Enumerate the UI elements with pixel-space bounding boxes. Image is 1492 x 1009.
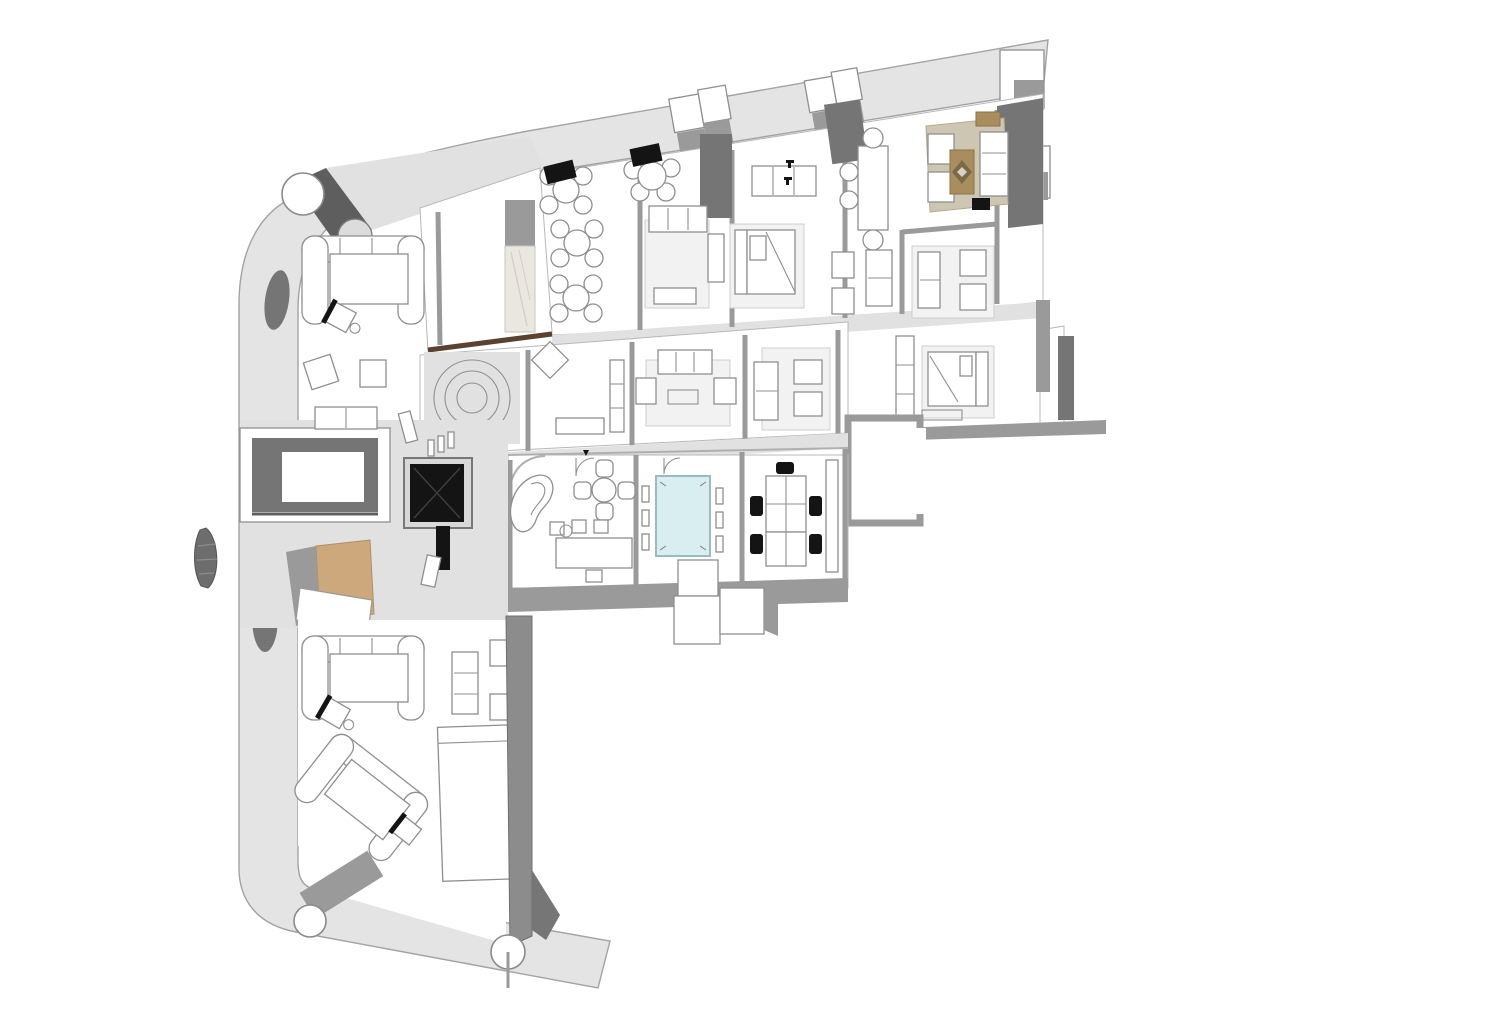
side-chair bbox=[642, 510, 649, 526]
closet bbox=[896, 336, 914, 424]
floor-plan-canvas bbox=[0, 0, 1492, 1009]
side-chair bbox=[642, 534, 649, 550]
bench bbox=[556, 418, 604, 434]
floor-plan-rendering bbox=[0, 0, 1492, 1009]
bedroom-2 bbox=[896, 336, 994, 424]
chair bbox=[840, 191, 858, 209]
wall-block bbox=[1036, 300, 1050, 392]
chair bbox=[840, 163, 858, 181]
u-sofa-arm bbox=[302, 236, 328, 324]
armchair bbox=[832, 252, 854, 278]
armchair bbox=[832, 288, 854, 314]
left-core bbox=[195, 411, 509, 634]
round-column bbox=[294, 905, 326, 937]
wall-block bbox=[1058, 336, 1074, 420]
task-chair-black bbox=[750, 496, 763, 516]
armchair bbox=[960, 284, 986, 310]
wall bbox=[438, 212, 440, 345]
railing bbox=[428, 440, 434, 456]
railing bbox=[438, 436, 444, 452]
tall-cabinet bbox=[826, 460, 838, 572]
stair-void bbox=[240, 428, 390, 522]
sitting-room bbox=[912, 246, 994, 318]
armchair bbox=[794, 360, 822, 384]
louver-column bbox=[195, 528, 218, 588]
terrace-opening bbox=[912, 428, 926, 514]
tall-marble-wardrobe bbox=[505, 246, 535, 332]
sofa bbox=[649, 206, 707, 232]
sofa bbox=[452, 652, 478, 714]
sitting-group-left bbox=[303, 354, 386, 429]
terrace-box bbox=[848, 418, 926, 523]
side-chair bbox=[716, 512, 723, 528]
pillow bbox=[750, 236, 766, 260]
side-chair bbox=[716, 488, 723, 504]
task-chair-black bbox=[750, 534, 763, 554]
storage-closet bbox=[437, 725, 518, 882]
terrace-walls bbox=[848, 418, 920, 523]
chair bbox=[863, 128, 883, 148]
shelf bbox=[610, 360, 624, 432]
armchair bbox=[636, 378, 656, 404]
pillow bbox=[960, 356, 972, 376]
cube bbox=[674, 596, 720, 644]
armchair bbox=[960, 250, 986, 276]
desk bbox=[330, 654, 408, 702]
wardrobe-top bbox=[505, 200, 535, 246]
sideboard bbox=[976, 112, 1000, 126]
railing bbox=[448, 432, 454, 448]
armchair bbox=[360, 360, 386, 387]
sofa bbox=[658, 350, 712, 374]
tan-room bbox=[286, 540, 374, 634]
headboard bbox=[976, 352, 988, 406]
round-column bbox=[282, 173, 324, 215]
task-chair-black bbox=[809, 534, 822, 554]
glass-table-cyan bbox=[656, 476, 710, 556]
sofa bbox=[980, 132, 1008, 196]
living-nook-1 bbox=[636, 350, 736, 426]
task-chair-black bbox=[776, 462, 794, 474]
side-chair bbox=[716, 536, 723, 552]
desk bbox=[330, 254, 408, 304]
side-cabinet bbox=[708, 234, 724, 282]
tv-black bbox=[972, 198, 990, 210]
lower-wing bbox=[508, 433, 848, 644]
void-opening bbox=[282, 452, 364, 502]
wall-shadow bbox=[532, 870, 560, 940]
closet-shelf bbox=[752, 166, 816, 196]
armchair bbox=[794, 392, 822, 416]
armchair bbox=[303, 354, 338, 389]
executive-lounge-1 bbox=[302, 236, 424, 339]
cube bbox=[720, 588, 764, 634]
cube bbox=[678, 560, 718, 596]
side-chair bbox=[642, 486, 649, 502]
upper-left-rooms bbox=[302, 236, 424, 429]
living-nook-2 bbox=[754, 348, 830, 430]
lounge-top-right bbox=[926, 112, 1008, 212]
armchair bbox=[714, 378, 736, 404]
headboard bbox=[735, 230, 747, 294]
task-chair-black bbox=[809, 496, 822, 516]
tall-gray-wall bbox=[506, 616, 532, 946]
coffee-table bbox=[654, 288, 696, 304]
dining-table bbox=[858, 146, 888, 230]
chair bbox=[863, 230, 883, 250]
